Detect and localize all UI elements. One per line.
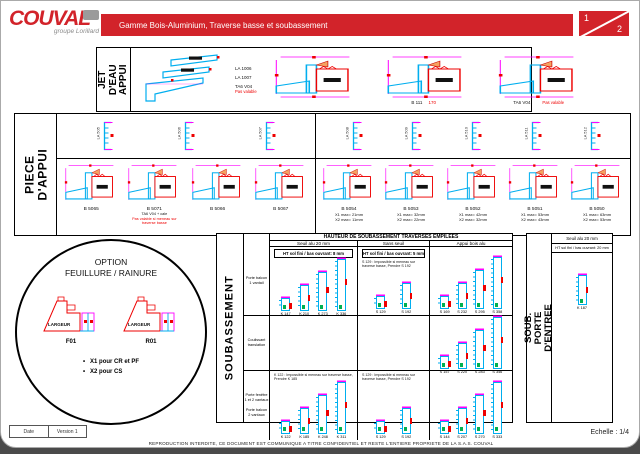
alu-profile-ref: LA 509	[404, 133, 409, 139]
option-bullets: • X1 pour CR et PF • X2 pour CS	[83, 357, 139, 377]
table-row-porte-fenetre: Porte fenêtre 1 et 2 vantaux Porte balco…	[244, 371, 512, 440]
gasket-mark	[320, 305, 323, 309]
section-ref: B 111	[411, 100, 422, 105]
piece-appui-content: LA 505 LA 506	[57, 114, 630, 235]
stacked-profile-drawing	[376, 296, 385, 309]
section-ref: TA6 V04	[513, 100, 530, 105]
stacked-profile-ref: K 248	[318, 435, 328, 439]
cell-r1c1: HT sol fini / bas ouvrant: 8 mm K 147 K …	[270, 247, 358, 315]
bullet-text: X2 pour CS	[90, 367, 122, 377]
porte-entree-header: Seuil alu 20 mm	[552, 234, 612, 244]
cross-section-drawing	[190, 162, 246, 206]
cross-section-drawing	[507, 162, 563, 206]
stacked-profile: S 283	[475, 330, 485, 374]
stacked-profile: S 333	[492, 382, 502, 439]
stacked-profile-drawing	[281, 298, 290, 311]
option-bullet: • X1 pour CR et PF	[83, 357, 139, 367]
document-title-bar: Gamme Bois-Aluminium, Traverse basse et …	[101, 14, 573, 36]
stacked-profile-ref: S 270	[475, 435, 485, 439]
jet-callouts: LA 1006 LA 1007 TA6 V04 Pas valable	[235, 66, 257, 94]
alu-profile-ref: LA 505	[96, 133, 101, 139]
jet-section-drawing: B 111 170	[375, 54, 479, 105]
stacked-profile-ref: S 295	[475, 310, 485, 314]
gasket-mark	[302, 305, 305, 309]
stacked-profile: S 270	[475, 395, 485, 439]
piece-appui-section: B 5065	[62, 162, 120, 212]
section-dimension: 170	[428, 100, 436, 105]
cell-r2c2	[358, 316, 430, 370]
stacked-profile-ref: S 232	[457, 310, 467, 314]
alu-profile-drawing	[469, 121, 483, 151]
cell-r1c3: S 169 S 232 S 295	[430, 247, 512, 315]
jet-section-drawing: TA6 V04 Pas valable	[487, 54, 591, 105]
stacked-profile-ref: S 129	[376, 310, 386, 314]
section-x2-max: X2 max= 11mm	[335, 217, 363, 222]
table-corner	[244, 234, 270, 241]
stacked-profile: K 122	[281, 421, 291, 439]
section-ref: B 5067	[273, 207, 288, 212]
logo-mark-icon	[83, 10, 99, 20]
profiles-zone-left: LA 505 LA 506	[57, 114, 316, 158]
stacks-r1c3: S 169 S 232 S 295	[432, 257, 510, 314]
stacked-profile-drawing	[458, 343, 467, 369]
gasket-mark	[404, 303, 407, 307]
jet-deau-label-col: JET D'EAU APPUI	[97, 48, 131, 111]
stacked-profile: S 169	[440, 296, 450, 314]
stacked-profile-drawing	[493, 382, 502, 434]
page-indicator: 1 2	[579, 11, 629, 36]
stacked-profile-drawing	[578, 275, 587, 305]
alu-profile-ref: LA 510	[463, 133, 468, 139]
section-x2-max: X2 max= 53mm	[583, 217, 611, 222]
stacked-profile-drawing	[440, 296, 449, 309]
stacked-profile-drawing	[318, 272, 327, 311]
stacked-profile-drawing	[376, 421, 385, 434]
jet-callout: LA 1007	[235, 75, 257, 80]
option-profile-drawing: LARGEUR	[40, 293, 102, 337]
table-title: HAUTEUR DE SOUBASSEMENT TRAVERSES EMPILE…	[270, 234, 512, 241]
stacked-profile-ref: S 129	[376, 435, 386, 439]
stacked-profile: K 248	[318, 395, 328, 439]
stacked-profile-ref: K 185	[299, 435, 309, 439]
gasket-mark	[339, 427, 342, 431]
stacked-profile-drawing	[475, 330, 484, 369]
piece-appui-sections-row: B 5065	[57, 159, 630, 235]
cell-note: K 122 : Impossible si meneau sur travers…	[274, 373, 353, 382]
table-title-row: HAUTEUR DE SOUBASSEMENT TRAVERSES EMPILE…	[244, 234, 512, 241]
cross-section-drawing	[383, 162, 439, 206]
stacked-profile-drawing	[402, 408, 411, 434]
jet-callout-text: LA 1007	[235, 75, 257, 80]
soubassement-label: SOUBASSEMENT	[224, 276, 236, 381]
stacks-r3c2: S 129 S 192	[360, 408, 427, 439]
stacked-profile: S 220	[457, 343, 467, 374]
alu-profile-drawing	[409, 121, 423, 151]
stacked-profile-ref: S 192	[401, 435, 411, 439]
alu-profile: LA 509	[403, 121, 423, 151]
alu-profile: LA 508	[344, 121, 364, 151]
piece-appui-section: B 5053 X1 max= 32mm X2 max= 22mm	[382, 162, 440, 222]
table-row-coulissant: Coulissant translation S 157	[244, 316, 512, 371]
stacked-profile-drawing	[458, 408, 467, 434]
option-drawing: LARGEUR R01	[120, 293, 182, 345]
stacked-profile: S 232	[457, 283, 467, 314]
document-sheet: COUVAL groupe Lorillard Gamme Bois-Alumi…	[0, 0, 640, 448]
option-bullet: • X2 pour CS	[83, 367, 139, 377]
piece-appui-profiles-row: LA 505 LA 506	[57, 114, 630, 159]
porte-entree-label: SOUB. PORTE D'ENTREE	[524, 304, 554, 352]
alu-profile-ref: LA 506	[176, 133, 181, 139]
section-soubassement: SOUBASSEMENT HAUTEUR DE SOUBASSEMENT TRA…	[216, 233, 513, 423]
cross-section-drawing	[272, 54, 358, 100]
stacks-r2c3: S 157 S 220 S 283	[432, 317, 510, 374]
stacked-profile: S 346	[492, 317, 502, 374]
piece-appui-section: B 5066	[189, 162, 247, 212]
gasket-mark	[442, 427, 445, 431]
stacked-profile: S 144	[440, 421, 450, 439]
sections-zone-right: B 5054 X1 max= 21mm X2 max= 11mm	[316, 159, 630, 235]
section-x2-max: X2 max= 32mm	[459, 217, 487, 222]
porte-entree-label-col: SOUB. PORTE D'ENTREE	[527, 234, 552, 422]
option-drawing-caption: F01	[66, 339, 76, 345]
stacked-profile-drawing	[493, 317, 502, 369]
scale-note: Echelle : 1/4	[539, 429, 629, 436]
piece-appui-section: B 5071 TA6 V04 + cale Pas valable si men…	[125, 162, 183, 226]
option-feuillure-circle: OPTION FEUILLURE / RAINURE LARGEUR	[15, 239, 207, 425]
jet-deau-stacked-drawing: LA 1006 LA 1007 TA6 V04 Pas valable	[141, 53, 257, 107]
gasket-mark	[580, 299, 583, 303]
option-drawings: LARGEUR F01 LARGEUR	[40, 293, 182, 345]
gasket-mark	[378, 427, 381, 431]
stacked-profile-ref: S 192	[401, 310, 411, 314]
jet-deau-content: LA 1006 LA 1007 TA6 V04 Pas valable	[131, 48, 595, 111]
piece-appui-section: B 5050 X1 max= 63mm X2 max= 53mm	[568, 162, 626, 222]
alu-profile: LA 507	[257, 121, 277, 151]
jet-callout-text: LA 1006	[235, 66, 257, 71]
gasket-mark	[495, 427, 498, 431]
jet-sections: B 111 170	[263, 54, 591, 105]
section-ref: B 5065	[84, 207, 99, 212]
piece-appui-section: B 5051 X1 max= 53mm X2 max= 43mm	[506, 162, 564, 222]
cross-section-drawing	[496, 54, 582, 100]
bullet-icon: •	[83, 357, 85, 367]
page: { "colors": { "accent":"#d2232a", "alu":…	[0, 0, 640, 454]
stacked-profile-drawing	[458, 283, 467, 309]
piece-appui-section: B 5067	[252, 162, 310, 212]
row-label: Porte fenêtre 1 et 2 vantaux Porte balco…	[244, 371, 270, 440]
cross-section-drawing	[384, 54, 470, 100]
stacks-r1c1: K 147 K 210 K 273	[272, 259, 355, 316]
alu-profile: LA 511	[523, 121, 543, 151]
gasket-mark	[477, 427, 480, 431]
page-total: 2	[617, 24, 622, 34]
alu-profile-drawing	[588, 121, 602, 151]
alu-profile-drawing	[529, 121, 543, 151]
stacked-profile: K 311	[337, 382, 347, 439]
jet-section-captions: TA6 V04 Pas valable	[513, 100, 564, 105]
document-title: Gamme Bois-Aluminium, Traverse basse et …	[119, 21, 328, 30]
option-drawing: LARGEUR F01	[40, 293, 102, 345]
stacked-profile-drawing	[440, 356, 449, 369]
gasket-mark	[283, 305, 286, 309]
stacked-profile-drawing	[318, 395, 327, 434]
gasket-mark	[477, 303, 480, 307]
stacked-profile: S 129	[376, 296, 386, 314]
porte-entree-content: Seuil alu 20 mm HT sol fini / bas ouvran…	[552, 234, 612, 422]
alu-profile-drawing	[101, 121, 115, 151]
bullet-text: X1 pour CR et PF	[90, 357, 139, 367]
option-largeur-label: LARGEUR	[48, 322, 71, 327]
stacked-profile-drawing	[300, 408, 309, 434]
section-ref: B 5066	[210, 207, 225, 212]
stacked-profile: K 210	[299, 285, 309, 316]
alu-profile: LA 506	[176, 121, 196, 151]
page-current: 1	[584, 13, 589, 23]
stacked-profile: S 192	[401, 408, 411, 439]
stacked-profile: K 185	[299, 408, 309, 439]
stacked-profile-drawing	[337, 259, 346, 311]
stacked-profile-drawing	[337, 382, 346, 434]
piece-appui-label: PIECE D'APPUI	[23, 149, 48, 201]
stacks-r3c3: S 144 S 207 S 270	[432, 382, 510, 439]
footer-version-table: Date Version 1	[9, 425, 87, 438]
gasket-mark	[283, 427, 286, 431]
gasket-mark	[460, 303, 463, 307]
porte-entree-subheader: HT sol fini / bas ouvrant: 20 mm	[552, 244, 612, 253]
alu-profile: LA 510	[463, 121, 483, 151]
sections-zone-left: B 5065	[57, 159, 316, 235]
footer-version-label: Version 1	[49, 426, 87, 437]
gasket-mark	[404, 427, 407, 431]
stacked-profile-drawing	[281, 421, 290, 434]
option-title: OPTION FEUILLURE / RAINURE	[65, 257, 157, 279]
cell-note: S 129 : Impossible si meneau sur travers…	[362, 373, 425, 382]
stacked-profile: K 336	[336, 259, 346, 316]
table-row-porte-balcon: Porte balcon 1 vantail HT sol fini / bas…	[244, 247, 512, 316]
stacked-profile-drawing	[493, 257, 502, 309]
gasket-mark	[442, 303, 445, 307]
jet-callout: LA 1006	[235, 66, 257, 71]
footer-date-label: Date	[10, 426, 49, 437]
jet-section-captions: B 111 170	[411, 100, 442, 105]
stacked-profile-ref: S 333	[492, 435, 502, 439]
stacked-profile-ref: K 122	[281, 435, 291, 439]
gasket-mark	[495, 363, 498, 367]
alu-profile: LA 505	[95, 121, 115, 151]
jet-callout: TA6 V04 Pas valable	[235, 84, 257, 94]
cell-r3c2: S 129 : Impossible si meneau sur travers…	[358, 371, 430, 440]
section-x2-max: X2 max= 43mm	[521, 217, 549, 222]
stacked-profile: K 147	[281, 298, 291, 316]
cell-r2c1	[270, 316, 358, 370]
stacked-profile-drawing	[402, 283, 411, 309]
gasket-mark	[460, 363, 463, 367]
section-piece-appui: PIECE D'APPUI LA 505	[14, 113, 631, 236]
gasket-mark	[442, 363, 445, 367]
alu-profile-ref: LA 512	[583, 133, 588, 139]
alu-profile: LA 512	[582, 121, 602, 151]
soubassement-label-col: SOUBASSEMENT	[217, 234, 244, 422]
subheader-5mm: HT sol fini / bas ouvrant: 5 mm	[362, 249, 425, 258]
cell-r1c2: HT sol fini / bas ouvrant: 5 mm S 129 : …	[358, 247, 430, 315]
option-drawing-caption: R01	[145, 339, 156, 345]
alu-profile-ref: LA 508	[344, 133, 349, 139]
stacks-r3c1: K 122 K 185 K 248	[272, 382, 355, 439]
option-profile-drawing: LARGEUR	[120, 293, 182, 337]
piece-appui-label-col: PIECE D'APPUI	[15, 114, 57, 235]
cell-r3c3: S 144 S 207 S 270	[430, 371, 512, 440]
section-warning: Pas valable si meneau sur traverse basse	[125, 217, 183, 226]
cross-section-drawing	[63, 162, 119, 206]
couval-logo: COUVAL groupe Lorillard	[9, 8, 99, 44]
row-label: Coulissant translation	[244, 316, 270, 370]
stacked-profile-drawing	[440, 421, 449, 434]
gasket-mark	[320, 427, 323, 431]
confidentiality-notice: REPRODUCTION INTERDITE, CE DOCUMENT EST …	[1, 441, 640, 446]
cross-section-drawing	[126, 162, 182, 206]
alu-profile-drawing	[350, 121, 364, 151]
gasket-mark	[378, 303, 381, 307]
stacked-profile-ref: S 358	[492, 310, 502, 314]
piece-appui-section: B 5052 X1 max= 42mm X2 max= 32mm	[444, 162, 502, 222]
cell-note: S 129 : Impossible si meneau sur travers…	[362, 260, 425, 269]
jet-section-drawing	[263, 54, 367, 105]
porte-entree-profile: K 187	[552, 275, 612, 310]
jet-deau-label: JET D'EAU APPUI	[98, 63, 130, 96]
cross-section-drawing	[253, 162, 309, 206]
soubassement-table: HAUTEUR DE SOUBASSEMENT TRAVERSES EMPILE…	[244, 234, 512, 422]
cell-r2c3: S 157 S 220 S 283	[430, 316, 512, 370]
gasket-mark	[495, 303, 498, 307]
stacked-profile: S 295	[475, 270, 485, 314]
gasket-mark	[339, 305, 342, 309]
porte-entree-ref: K 187	[577, 306, 587, 310]
stacked-profile: S 358	[492, 257, 502, 314]
alu-profile-drawing	[263, 121, 277, 151]
stacked-profile-ref: K 311	[337, 435, 347, 439]
section-porte-entree: SOUB. PORTE D'ENTREE Seuil alu 20 mm HT …	[526, 233, 613, 423]
stacked-profile-ref: S 144	[440, 435, 450, 439]
gasket-mark	[460, 427, 463, 431]
stacked-profile-drawing	[300, 285, 309, 311]
option-largeur-label: LARGEUR	[128, 322, 151, 327]
cross-section-drawing	[569, 162, 625, 206]
jet-callout-warning: Pas valable	[235, 89, 257, 94]
stacked-profile-drawing	[475, 270, 484, 309]
stacked-profile-drawing	[475, 395, 484, 434]
stacked-profile: S 192	[401, 283, 411, 314]
section-warning: Pas valable	[542, 100, 564, 105]
row-label: Porte balcon 1 vantail	[244, 247, 270, 315]
profiles-zone-right: LA 508 LA 509	[316, 114, 630, 158]
cross-section-drawing	[445, 162, 501, 206]
stacked-profile-ref: S 169	[440, 310, 450, 314]
alu-profile-ref: LA 507	[257, 133, 262, 139]
stacked-profile: K 273	[318, 272, 328, 316]
cross-section-drawing	[321, 162, 377, 206]
bullet-icon: •	[83, 367, 85, 377]
piece-appui-section: B 5054 X1 max= 21mm X2 max= 11mm	[320, 162, 378, 222]
stacked-profile: S 207	[457, 408, 467, 439]
jet-profiles-drawing	[141, 53, 233, 107]
cell-r3c1: K 122 : Impossible si meneau sur travers…	[270, 371, 358, 440]
section-x2-max: X2 max= 22mm	[397, 217, 425, 222]
gasket-mark	[302, 427, 305, 431]
alu-profile-ref: LA 511	[523, 133, 528, 139]
gasket-mark	[477, 363, 480, 367]
alu-profile-drawing	[182, 121, 196, 151]
stacked-profile-ref: S 207	[457, 435, 467, 439]
subheader-8mm: HT sol fini / bas ouvrant: 8 mm	[274, 249, 353, 258]
stacked-profile: S 129	[376, 421, 386, 439]
stacks-r1c2: S 129 S 192	[360, 283, 427, 314]
section-jet-deau: JET D'EAU APPUI	[96, 47, 532, 112]
